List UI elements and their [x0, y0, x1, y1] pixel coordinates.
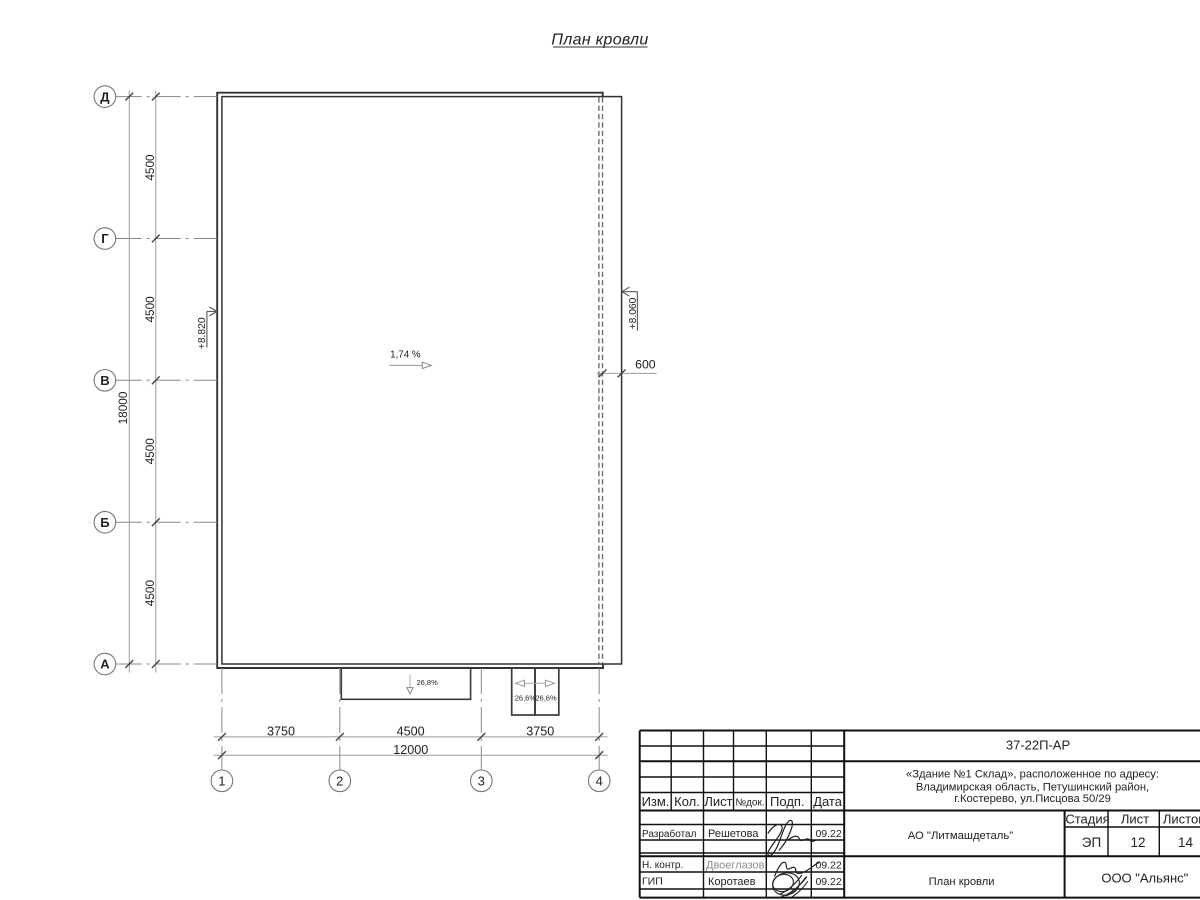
svg-text:Коротаев: Коротаев: [708, 876, 756, 888]
svg-text:Кол.: Кол.: [674, 794, 700, 809]
svg-text:Дата: Дата: [813, 794, 843, 809]
svg-text:4500: 4500: [143, 580, 157, 607]
svg-text:3750: 3750: [526, 725, 554, 739]
svg-text:09.22: 09.22: [815, 828, 841, 840]
svg-text:Г: Г: [101, 231, 109, 246]
svg-text:Изм.: Изм.: [642, 794, 670, 809]
svg-text:А: А: [100, 657, 110, 672]
svg-text:12: 12: [1130, 835, 1145, 850]
svg-text:Д: Д: [100, 89, 110, 104]
svg-text:Н. контр.: Н. контр.: [642, 860, 683, 871]
svg-text:В: В: [100, 373, 109, 388]
svg-text:Двоеглазов: Двоеглазов: [706, 859, 765, 871]
svg-text:26,6%: 26,6%: [515, 694, 537, 703]
svg-text:37-22П-АР: 37-22П-АР: [1006, 738, 1070, 753]
svg-text:«Здание №1 Склад», расположенн: «Здание №1 Склад», расположенное по адре…: [906, 768, 1159, 780]
svg-text:г.Костерево, ул.Писцова 50/29: г.Костерево, ул.Писцова 50/29: [954, 793, 1111, 805]
svg-text:26,6%: 26,6%: [535, 694, 557, 703]
svg-text:Решетова: Решетова: [708, 828, 759, 840]
svg-text:План кровли: План кровли: [551, 31, 648, 48]
svg-text:4500: 4500: [143, 296, 157, 323]
svg-text:09.22: 09.22: [815, 859, 841, 871]
svg-text:18000: 18000: [116, 391, 130, 424]
svg-text:Лист: Лист: [1121, 812, 1149, 827]
svg-text:09.22: 09.22: [815, 876, 841, 888]
svg-text:ГИП: ГИП: [642, 876, 663, 888]
svg-text:Листов: Листов: [1163, 812, 1200, 827]
svg-text:АО "Литмашдеталь": АО "Литмашдеталь": [908, 830, 1014, 842]
svg-text:№док.: №док.: [735, 797, 764, 808]
svg-text:+8.060: +8.060: [628, 297, 639, 329]
svg-text:3: 3: [478, 774, 485, 789]
svg-text:Владимирская область, Петушинс: Владимирская область, Петушинский район,: [916, 781, 1149, 793]
svg-text:ЭП: ЭП: [1082, 835, 1101, 850]
svg-text:4500: 4500: [397, 725, 425, 739]
svg-text:26,8%: 26,8%: [417, 678, 439, 687]
svg-text:Б: Б: [100, 515, 109, 530]
svg-text:600: 600: [635, 358, 656, 372]
svg-text:Разработал: Разработал: [642, 828, 697, 840]
svg-text:+8.820: +8.820: [197, 317, 208, 349]
svg-text:Лист: Лист: [704, 794, 732, 809]
svg-text:12000: 12000: [393, 743, 428, 757]
svg-text:1: 1: [218, 774, 225, 789]
svg-text:1,74 %: 1,74 %: [390, 350, 421, 361]
svg-text:4500: 4500: [143, 438, 157, 465]
svg-text:4500: 4500: [143, 154, 157, 181]
svg-text:3750: 3750: [267, 725, 295, 739]
svg-text:2: 2: [336, 774, 343, 789]
svg-text:План кровли: План кровли: [929, 876, 995, 888]
svg-text:4: 4: [596, 774, 603, 789]
svg-text:ООО "Альянс": ООО "Альянс": [1101, 871, 1188, 886]
svg-text:Подп.: Подп.: [770, 794, 805, 809]
svg-text:14: 14: [1178, 835, 1194, 850]
svg-text:Стадия: Стадия: [1065, 812, 1109, 827]
